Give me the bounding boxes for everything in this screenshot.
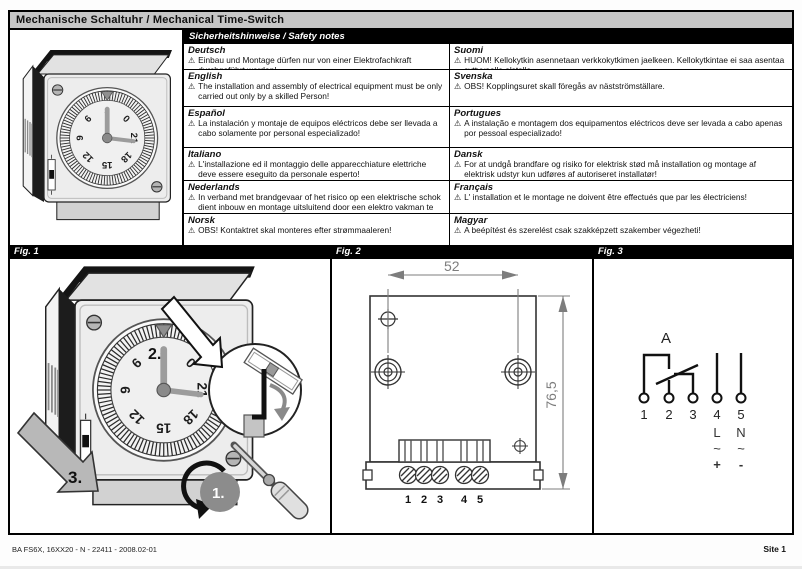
flange-notch-left	[363, 470, 372, 480]
dim-height-value: 76,5	[543, 381, 559, 408]
warning-icon: ⚠	[454, 193, 461, 203]
safety-cell-italiano: Italiano ⚠L'installazione ed il montaggi…	[184, 148, 450, 181]
warning-icon: ⚠	[188, 82, 195, 102]
device-overview-image	[10, 30, 184, 245]
figure-1-panel: Fig. 1 3.	[10, 245, 332, 533]
terminal-number: 5	[477, 494, 483, 506]
safety-cell-svenska: Svenska ⚠OBS! Kopplingsuret skall föregå…	[450, 70, 792, 107]
safety-text: OBS! Kopplingsuret skall föregås av näst…	[464, 82, 665, 92]
safety-cell-magyar: Magyar ⚠A beépítést és szerelést csak sz…	[450, 214, 792, 245]
safety-cell-suomi: Suomi ⚠HUOM! Kellokytkin asennetaan verk…	[450, 44, 792, 70]
safety-notes-header: Sicherheitshinweise / Safety notes	[184, 30, 792, 44]
ac-symbol: ~	[737, 441, 745, 456]
warning-icon: ⚠	[454, 226, 461, 236]
figure-2-label: Fig. 2	[332, 245, 592, 259]
step2-label: 2.	[148, 346, 161, 363]
figure-1-label: Fig. 1	[10, 245, 330, 259]
warning-icon: ⚠	[188, 193, 195, 214]
safety-text: For at undgå brandfare og risiko for ele…	[464, 160, 788, 180]
main-row: Sicherheitshinweise / Safety notes Deuts…	[10, 30, 792, 245]
manual-page: Mechanische Schaltuhr / Mechanical Time-…	[0, 0, 802, 569]
flange-notch-right	[534, 470, 543, 480]
figure-3-wiring-diagram: A 1 2	[594, 259, 792, 533]
step3-label: 3.	[68, 468, 82, 487]
safety-text: La instalación y montaje de equipos eléc…	[198, 119, 445, 139]
time-switch-illustration	[12, 33, 180, 243]
safety-text: A beépítést és szerelést csak szakképzet…	[464, 226, 701, 236]
figure-1-drawing: 3. 2.	[10, 259, 330, 533]
wiring-number: 1	[640, 407, 647, 422]
minus-symbol: -	[739, 457, 743, 472]
safety-text: In verband met brandgevaar of het risico…	[198, 193, 445, 214]
wiring-lines	[644, 353, 741, 393]
warning-icon: ⚠	[454, 119, 461, 139]
wiring-terminal-numbers: 1 2 3 4 5	[640, 407, 744, 422]
footer-document-code: BA FS6X, 16XX20 - N - 22411 - 2008.02-01	[12, 545, 157, 554]
terminal-number: 1	[405, 494, 411, 506]
dim-width-value: 52	[444, 259, 460, 274]
safety-text: The installation and assembly of electri…	[198, 82, 445, 102]
safety-text: L'installazione ed il montaggio delle ap…	[198, 160, 445, 180]
safety-cell-francais: Français ⚠L' installation et le montage …	[450, 181, 792, 214]
wiring-number: 3	[689, 407, 696, 422]
safety-text: OBS! Kontaktret skal monteres efter strø…	[198, 226, 391, 236]
terminal-number: 3	[437, 494, 443, 506]
screwdriver-collar	[264, 475, 275, 486]
safety-notes-section: Sicherheitshinweise / Safety notes Deuts…	[184, 30, 792, 245]
screwdriver-handle	[268, 479, 311, 522]
safety-cell-norsk: Norsk ⚠OBS! Kontaktret skal monteres eft…	[184, 214, 450, 245]
neutral-label: N	[736, 425, 745, 440]
safety-cell-portugues: Portugues ⚠A instalação e montagem dos e…	[450, 107, 792, 148]
warning-icon: ⚠	[188, 119, 195, 139]
safety-notes-table: Deutsch ⚠Einbau und Montage dürfen nur v…	[184, 44, 792, 245]
figure-3-panel: Fig. 3 A 1	[594, 245, 792, 533]
terminal-numbers: 1 2 3 4 5	[405, 494, 483, 506]
safety-cell-deutsch: Deutsch ⚠Einbau und Montage dürfen nur v…	[184, 44, 450, 70]
step1-label: 1.	[212, 485, 225, 502]
warning-icon: ⚠	[454, 56, 461, 70]
wiring-number: 4	[713, 407, 720, 422]
safety-text: Einbau und Montage dürfen nur von einer …	[198, 56, 445, 70]
wiring-terminals	[640, 394, 746, 403]
warning-icon: ⚠	[188, 56, 195, 70]
plus-symbol: +	[713, 457, 721, 472]
ac-symbol: ~	[713, 441, 721, 456]
safety-cell-nederlands: Nederlands ⚠In verband met brandgevaar o…	[184, 181, 450, 214]
warning-icon: ⚠	[454, 160, 461, 180]
wiring-number: 5	[737, 407, 744, 422]
figure-2-panel: Fig. 2	[332, 245, 594, 533]
terminal-screws	[400, 467, 489, 484]
safety-cell-espanol: Español ⚠La instalación y montaje de equ…	[184, 107, 450, 148]
contact-label: A	[661, 330, 671, 347]
warning-icon: ⚠	[188, 226, 195, 236]
safety-text: HUOM! Kellokytkin asennetaan verkkokytki…	[464, 56, 788, 70]
safety-cell-english: English ⚠The installation and assembly o…	[184, 70, 450, 107]
page-frame: Mechanische Schaltuhr / Mechanical Time-…	[8, 10, 794, 535]
safety-text: A instalação e montagem dos equipamentos…	[464, 119, 788, 139]
terminal-number: 4	[461, 494, 468, 506]
wiring-number: 2	[665, 407, 672, 422]
figures-row: Fig. 1 3.	[10, 245, 792, 533]
safety-text: L' installation et le montage ne doivent…	[464, 193, 747, 203]
figure-2-drawing: 52 76,5	[332, 259, 592, 533]
footer-page-number: Site 1	[763, 544, 786, 554]
safety-cell-dansk: Dansk ⚠For at undgå brandfare og risiko …	[450, 148, 792, 181]
mounting-flange	[366, 462, 540, 489]
figure-3-label: Fig. 3	[594, 245, 792, 259]
warning-icon: ⚠	[188, 160, 195, 180]
terminal-number: 2	[421, 494, 427, 506]
line-label: L	[713, 425, 720, 440]
warning-icon: ⚠	[454, 82, 461, 92]
page-title: Mechanische Schaltuhr / Mechanical Time-…	[10, 12, 792, 30]
supply-labels: L N ~ ~ + -	[713, 425, 745, 472]
